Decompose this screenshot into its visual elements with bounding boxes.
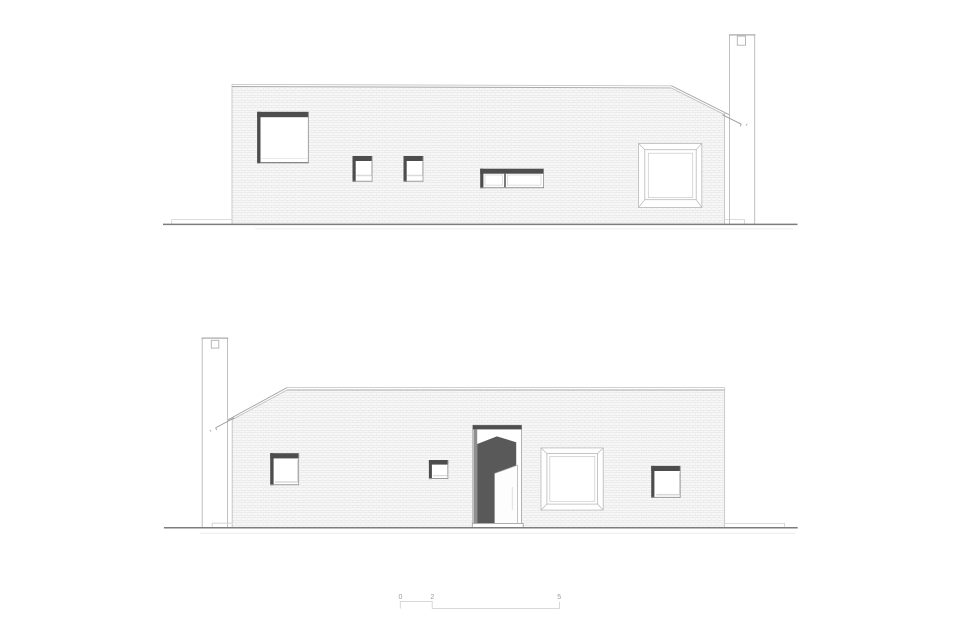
svg-text:5: 5: [557, 594, 561, 601]
svg-text:0: 0: [399, 594, 403, 601]
svg-text:2: 2: [430, 594, 434, 601]
